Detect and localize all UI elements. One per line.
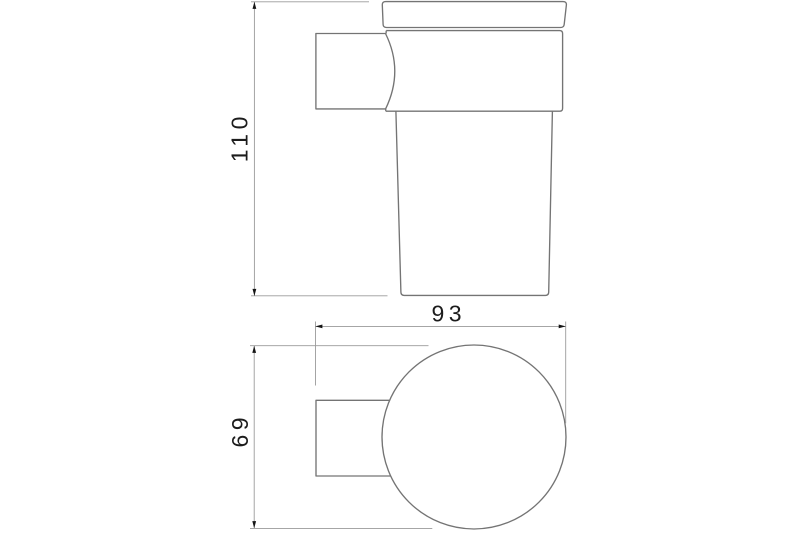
svg-text:110: 110 <box>227 112 253 162</box>
svg-text:93: 93 <box>432 301 467 327</box>
svg-text:69: 69 <box>227 413 253 448</box>
